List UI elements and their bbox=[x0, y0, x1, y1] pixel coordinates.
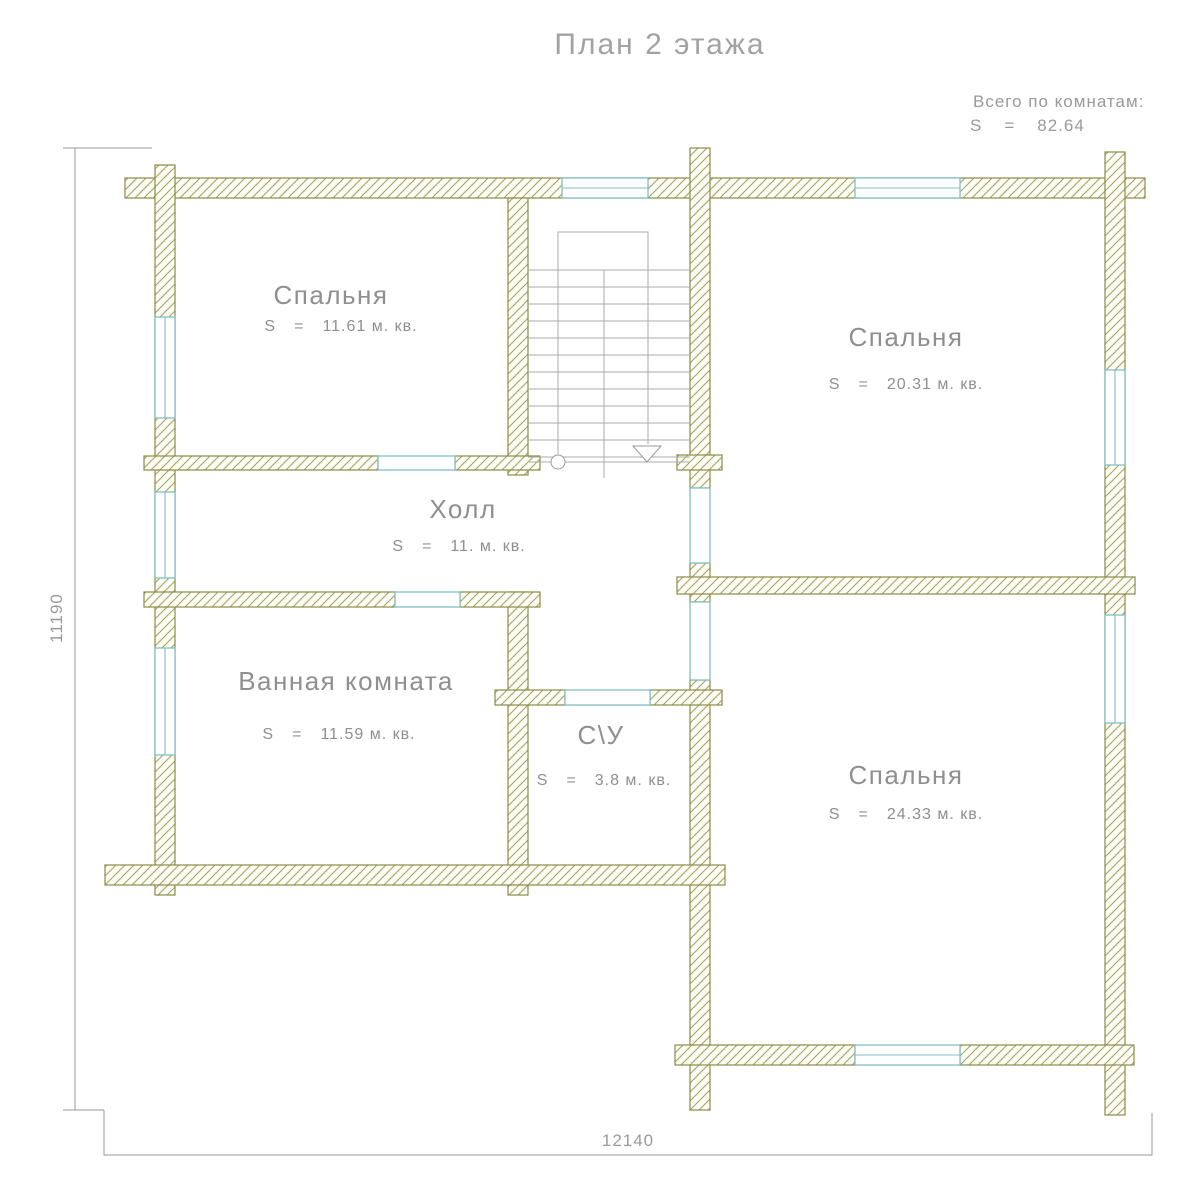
wall-bathroom-right bbox=[508, 592, 528, 895]
wall-stairwell-left bbox=[508, 198, 528, 475]
room-label-wc: С\У bbox=[577, 720, 624, 751]
total-s: S bbox=[970, 116, 982, 135]
total-area-value: S=82.64 bbox=[970, 116, 1085, 136]
floor-plan-drawing bbox=[0, 0, 1187, 1200]
wall-wc-top-b bbox=[650, 690, 722, 705]
total-equals: = bbox=[1004, 116, 1015, 135]
room-label-bedroom-bottom-right: Спальня bbox=[849, 760, 964, 791]
wall-bottom-left bbox=[105, 865, 725, 885]
wall-bottom-right-a bbox=[675, 1045, 855, 1065]
room-label-bathroom: Ванная комната bbox=[238, 666, 454, 697]
door-opening bbox=[690, 602, 710, 680]
room-area-hall: S=11. м. кв. bbox=[392, 538, 525, 556]
floor-plan: План 2 этажа Всего по комнатам: S=82.64 … bbox=[0, 0, 1187, 1200]
page-title: План 2 этажа bbox=[554, 28, 765, 62]
stair-landing bbox=[558, 232, 648, 270]
stair-down-arrow-icon bbox=[633, 446, 661, 462]
wall-central-top bbox=[690, 148, 710, 488]
windows bbox=[155, 178, 1125, 1065]
room-label-bedroom-top-left: Спальня bbox=[274, 280, 389, 311]
door-opening bbox=[690, 488, 710, 563]
room-area-bedroom-top-left: S=11.61 м. кв. bbox=[264, 318, 417, 336]
door-opening bbox=[378, 456, 455, 470]
total-number: 82.64 bbox=[1037, 116, 1085, 135]
wall-bottom-right-b bbox=[960, 1045, 1134, 1065]
wall-hall-bathroom-b bbox=[460, 592, 540, 607]
wall-right-bedrooms bbox=[677, 577, 1135, 594]
dimension-width-label: 12140 bbox=[602, 1131, 654, 1151]
wall-bedroomtl-hall-b bbox=[455, 456, 540, 470]
wall-wc-top-a bbox=[495, 690, 565, 705]
dimension-lines bbox=[63, 148, 1152, 1155]
total-area-label: Всего по комнатам: bbox=[973, 92, 1144, 112]
room-area-wc: S=3.8 м. кв. bbox=[537, 772, 672, 790]
room-label-hall: Холл bbox=[429, 494, 496, 525]
door-opening bbox=[565, 690, 650, 705]
room-label-bedroom-right: Спальня bbox=[849, 322, 964, 353]
dimension-height-label: 11190 bbox=[47, 593, 67, 643]
door-opening bbox=[395, 592, 460, 607]
room-area-bedroom-bottom-right: S=24.33 м. кв. bbox=[829, 806, 983, 824]
room-area-bedroom-right: S=20.31 м. кв. bbox=[829, 376, 983, 394]
wall-bedroomtl-hall-a bbox=[144, 456, 378, 470]
wall-hall-bathroom-a bbox=[144, 592, 395, 607]
stair-start-marker-icon bbox=[551, 455, 565, 469]
room-area-bathroom: S=11.59 м. кв. bbox=[262, 726, 415, 744]
staircase bbox=[528, 232, 690, 478]
walls bbox=[105, 148, 1145, 1115]
